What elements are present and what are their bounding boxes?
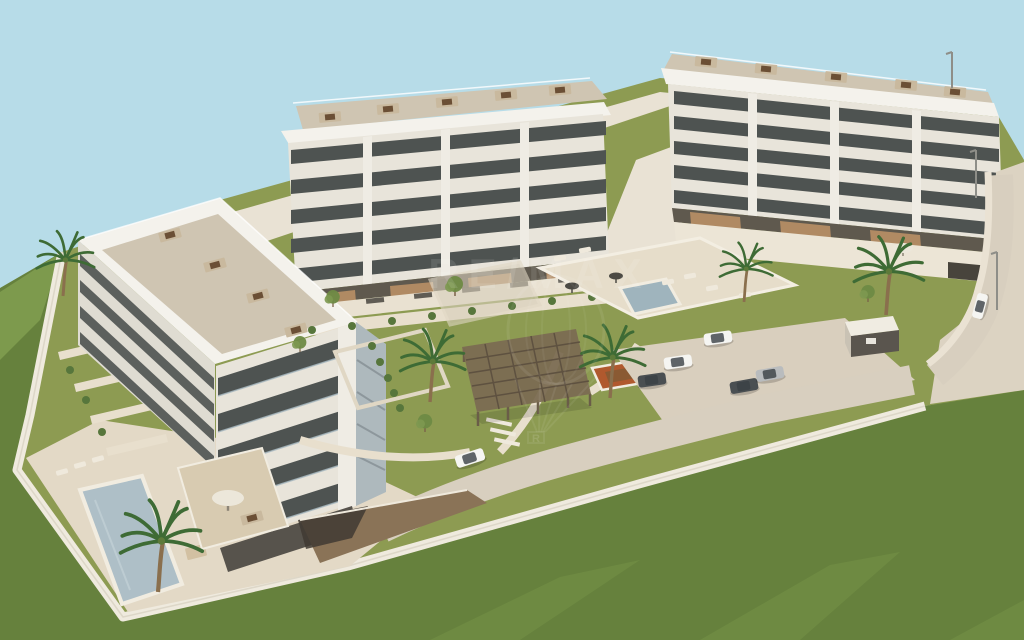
- render-canvas: RE/MAX R: [0, 0, 1024, 640]
- utility-sign: [866, 338, 876, 344]
- architectural-rendering: RE/MAX R: [0, 0, 1024, 640]
- utility-building: [845, 316, 899, 357]
- watermark-registered: R: [532, 433, 540, 445]
- watermark-text: RE/MAX: [428, 250, 651, 297]
